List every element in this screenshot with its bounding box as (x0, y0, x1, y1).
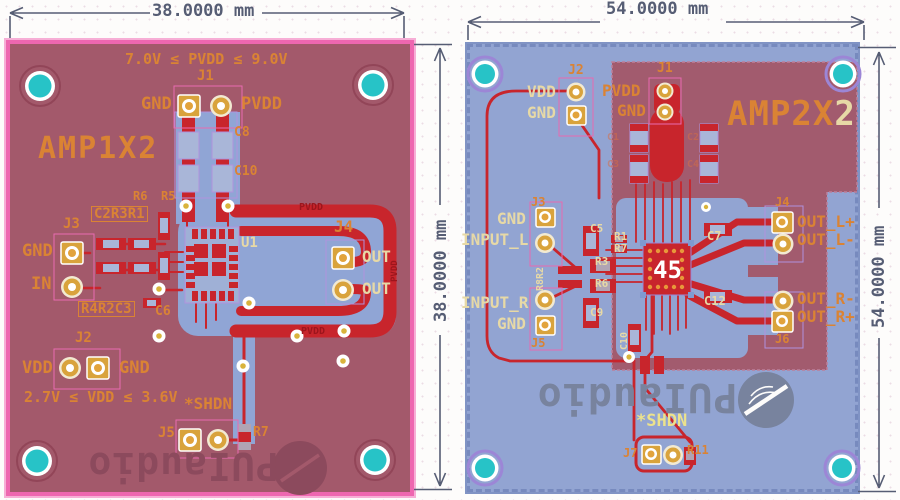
right-c4-ref: C4 (687, 160, 699, 170)
left-j1-gnd: GND (141, 96, 172, 113)
right-c3-ref: C3 (607, 160, 619, 170)
left-r5-ref: R5 (161, 190, 175, 202)
right-r8r2-refs: R8R2 (536, 267, 546, 291)
right-c12-ref: C12 (704, 295, 726, 307)
left-c8-ref: C8 (234, 126, 250, 139)
right-chip-marking: 45 (653, 258, 682, 282)
right-r3-ref: R3 (595, 256, 608, 267)
right-j5-gnd: GND (497, 316, 526, 332)
left-r6-ref: R6 (133, 190, 147, 202)
right-j1-gnd: GND (617, 103, 646, 119)
left-j2-gnd: GND (119, 360, 150, 377)
left-j5-ref: J5 (158, 426, 175, 440)
right-r7-ref: R7 (614, 243, 627, 254)
right-r11-ref: R11 (687, 444, 709, 456)
right-j3-ref: J3 (531, 196, 545, 208)
silkscreen-labels-layer: 7.0V ≤ PVDD ≤ 9.0VJ1GNDPVDDC8C10R6R5C2R3… (0, 0, 900, 500)
right-j2-gnd: GND (527, 105, 556, 121)
right-out-r-plus: OUT_R+ (797, 309, 855, 325)
right-c7-ref: C7 (707, 230, 721, 242)
right-j3-gnd: GND (497, 211, 526, 227)
right-r6-ref: R6 (595, 278, 608, 289)
right-c9-ref: C9 (590, 307, 603, 318)
left-j4-ref: J4 (334, 219, 353, 235)
right-j2-vdd: VDD (527, 84, 556, 100)
right-c5-ref: C5 (590, 223, 603, 234)
right-j1-ref: J1 (657, 62, 673, 75)
right-input-l: INPUT_L (461, 232, 528, 248)
left-pvdd-range: 7.0V ≤ PVDD ≤ 9.0V (125, 52, 288, 67)
left-j1-ref: J1 (197, 69, 214, 83)
left-c6-ref: C6 (155, 305, 171, 318)
right-out-l-plus: OUT_L+ (797, 214, 855, 230)
right-j5-ref: J5 (531, 337, 545, 349)
left-j3-in: IN (31, 276, 51, 293)
left-shdn-label: *SHDN (184, 396, 232, 412)
right-j6-ref: J6 (775, 333, 789, 345)
pcb-layout-canvas: AMP1X2 AMP2X2 PUIaudio PUIaudio 38.0000 … (0, 0, 900, 500)
left-c2r3r1-refs: C2R3R1 (91, 206, 148, 222)
right-c10-ref: C10 (620, 332, 630, 350)
left-j3-gnd: GND (22, 243, 53, 260)
left-pvdd-net-bottom: PVDD (301, 327, 325, 337)
right-j7-ref: J7 (623, 447, 637, 459)
left-vdd-range: 2.7V ≤ VDD ≤ 3.6V (24, 390, 178, 405)
left-j3-ref: J3 (63, 217, 80, 231)
left-r4r2c3-refs: R4R2C3 (78, 301, 135, 317)
left-r7-ref: R7 (253, 426, 269, 439)
left-pvdd-net-right: PVDD (391, 260, 400, 282)
left-pvdd-net-top: PVDD (299, 203, 323, 213)
left-out-bottom: OUT (362, 281, 391, 297)
right-r1-ref: R1 (614, 231, 627, 242)
right-input-r: INPUT_R (461, 295, 528, 311)
right-j4-ref: J4 (775, 196, 789, 208)
left-j2-ref: J2 (75, 331, 92, 345)
right-c1-ref: C1 (607, 133, 619, 143)
right-j1-pvdd: PVDD (602, 83, 641, 99)
left-u1-ref: U1 (241, 236, 258, 250)
right-shdn-label: *SHDN (636, 413, 687, 430)
left-c10-ref: C10 (234, 165, 257, 178)
left-out-top: OUT (362, 249, 391, 265)
right-j2-ref: J2 (568, 64, 584, 77)
right-out-r-minus: OUT_R- (797, 291, 855, 307)
right-out-l-minus: OUT_L- (797, 232, 855, 248)
left-j2-vdd: VDD (22, 360, 53, 377)
left-j1-pvdd: PVDD (241, 96, 282, 113)
right-c2-ref: C2 (687, 133, 699, 143)
